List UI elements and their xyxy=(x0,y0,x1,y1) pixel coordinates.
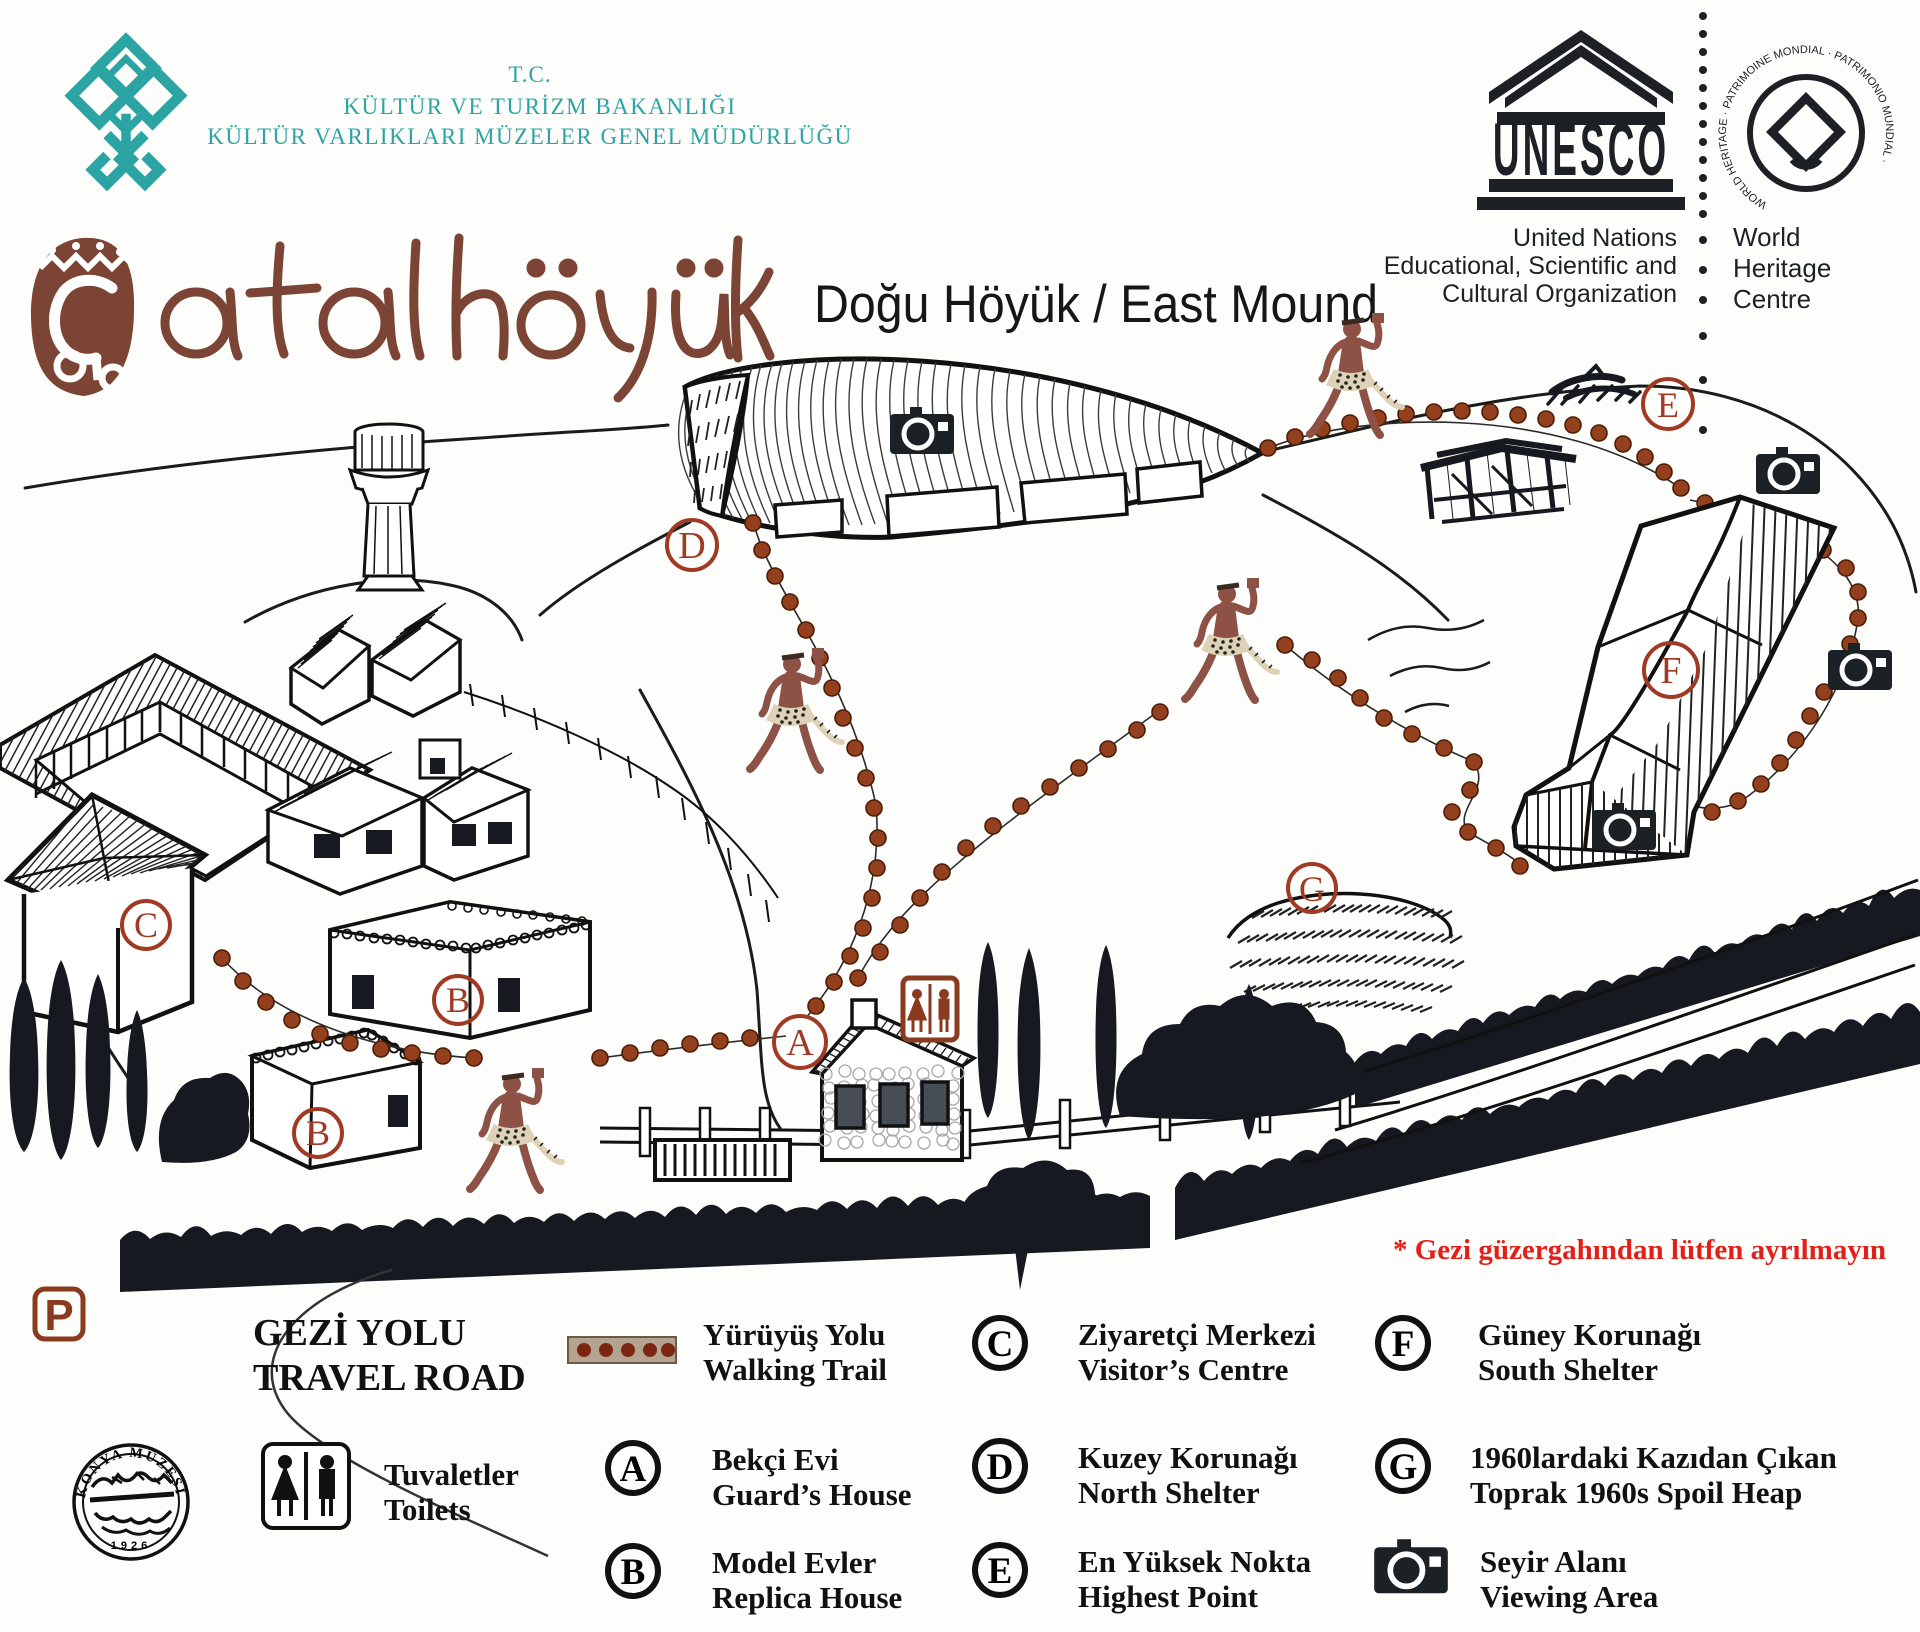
svg-text:P: P xyxy=(44,1291,73,1340)
svg-text:Viewing Area: Viewing Area xyxy=(1480,1579,1659,1614)
svg-text:E: E xyxy=(988,1551,1013,1592)
svg-text:Replica House: Replica House xyxy=(712,1580,902,1615)
svg-text:KÜLTÜR VE TURİZM BAKANLIĞI: KÜLTÜR VE TURİZM BAKANLIĞI xyxy=(343,94,736,119)
svg-text:GEZİ YOLU: GEZİ YOLU xyxy=(253,1312,466,1354)
svg-text:En Yüksek Nokta: En Yüksek Nokta xyxy=(1078,1544,1312,1579)
svg-text:Güney Korunağı: Güney Korunağı xyxy=(1478,1317,1701,1352)
svg-text:1926: 1926 xyxy=(111,1540,151,1552)
svg-text:Bekçi Evi: Bekçi Evi xyxy=(712,1442,839,1477)
svg-text:1960lardaki Kazıdan Çıkan: 1960lardaki Kazıdan Çıkan xyxy=(1470,1440,1837,1475)
svg-text:A: A xyxy=(786,1022,814,1064)
svg-text:D: D xyxy=(678,525,705,567)
svg-text:Walking Trail: Walking Trail xyxy=(703,1352,887,1387)
svg-text:Guard’s House: Guard’s House xyxy=(712,1477,912,1512)
svg-text:Kuzey Korunağı: Kuzey Korunağı xyxy=(1078,1440,1298,1475)
svg-text:E: E xyxy=(1657,385,1679,425)
svg-text:Visitor’s Centre: Visitor’s Centre xyxy=(1078,1352,1288,1387)
svg-text:D: D xyxy=(987,1447,1014,1488)
svg-text:South Shelter: South Shelter xyxy=(1478,1352,1658,1387)
svg-text:T.C.: T.C. xyxy=(508,62,551,87)
svg-text:Toprak 1960s Spoil Heap: Toprak 1960s Spoil Heap xyxy=(1470,1475,1802,1510)
svg-text:Toilets: Toilets xyxy=(384,1492,471,1527)
svg-text:Highest Point: Highest Point xyxy=(1078,1579,1259,1614)
svg-text:C: C xyxy=(987,1324,1014,1365)
svg-text:Yürüyüş Yolu: Yürüyüş Yolu xyxy=(703,1317,885,1352)
svg-text:North Shelter: North Shelter xyxy=(1078,1475,1260,1510)
svg-text:Centre: Centre xyxy=(1733,284,1811,314)
svg-text:Tuvaletler: Tuvaletler xyxy=(384,1457,519,1492)
svg-text:UNESCO: UNESCO xyxy=(1493,109,1669,191)
svg-text:KÜLTÜR VARLIKLARI MÜZELER GENE: KÜLTÜR VARLIKLARI MÜZELER GENEL MÜDÜRLÜĞ… xyxy=(207,124,852,149)
svg-text:B: B xyxy=(621,1552,646,1593)
svg-text:A: A xyxy=(620,1449,647,1490)
svg-text:G: G xyxy=(1389,1447,1418,1488)
svg-text:Doğu Höyük / East Mound: Doğu Höyük / East Mound xyxy=(814,275,1378,334)
svg-text:F: F xyxy=(1660,650,1681,692)
svg-text:United Nations: United Nations xyxy=(1513,224,1677,252)
svg-text:B: B xyxy=(446,980,470,1020)
svg-text:TRAVEL ROAD: TRAVEL ROAD xyxy=(253,1357,526,1399)
svg-text:G: G xyxy=(1299,869,1325,909)
svg-text:World: World xyxy=(1733,222,1800,252)
svg-text:Educational, Scientific and: Educational, Scientific and xyxy=(1384,252,1677,280)
svg-text:Seyir Alanı: Seyir Alanı xyxy=(1480,1544,1627,1579)
svg-text:Cultural Organization: Cultural Organization xyxy=(1442,280,1677,308)
svg-text:B: B xyxy=(306,1113,330,1153)
svg-text:Ziyaretçi Merkezi: Ziyaretçi Merkezi xyxy=(1078,1317,1316,1352)
svg-text:* Gezi güzergahından lütfen ay: * Gezi güzergahından lütfen ayrılmayın xyxy=(1393,1234,1886,1266)
svg-text:Heritage: Heritage xyxy=(1733,253,1831,283)
svg-text:F: F xyxy=(1392,1324,1415,1365)
svg-text:C: C xyxy=(134,905,158,945)
svg-text:Model Evler: Model Evler xyxy=(712,1545,877,1580)
